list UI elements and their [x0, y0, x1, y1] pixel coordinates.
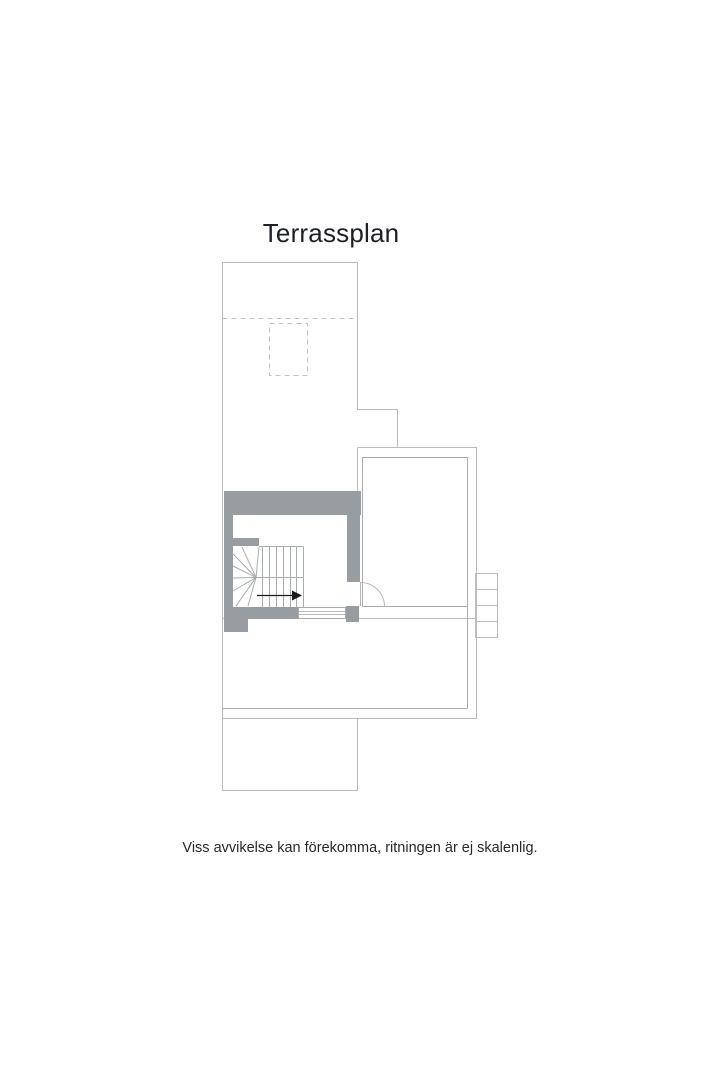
wall-bottom-band — [224, 607, 298, 619]
floor-plan-drawing — [0, 0, 720, 1080]
stair-direction-arrow-icon — [257, 591, 302, 601]
wall-bottom-left-foot — [224, 619, 248, 632]
stair-winder-fan — [233, 547, 259, 606]
upper-building-outline — [223, 263, 398, 791]
wall-door-block — [346, 606, 359, 622]
terrace-outer-boundary — [223, 448, 477, 719]
wall-left — [224, 515, 233, 607]
upper-terrace-inner-rect — [363, 458, 468, 607]
plan-disclaimer: Viss avvikelse kan förekomma, ritningen … — [182, 840, 537, 856]
door-swing — [361, 582, 385, 607]
skylight-dashed-rect — [270, 324, 308, 376]
lower-building-outline — [223, 719, 358, 791]
floor-plan-page: Terrassplan — [0, 0, 720, 1080]
wall-stair-stub — [233, 538, 259, 546]
dashed-ceiling-line-group — [223, 319, 358, 376]
door-arc — [361, 583, 385, 607]
window-frame — [299, 608, 346, 619]
window — [299, 608, 346, 619]
exterior-steps — [476, 574, 498, 638]
wall-right — [347, 491, 360, 582]
wall-top-band — [224, 491, 361, 515]
